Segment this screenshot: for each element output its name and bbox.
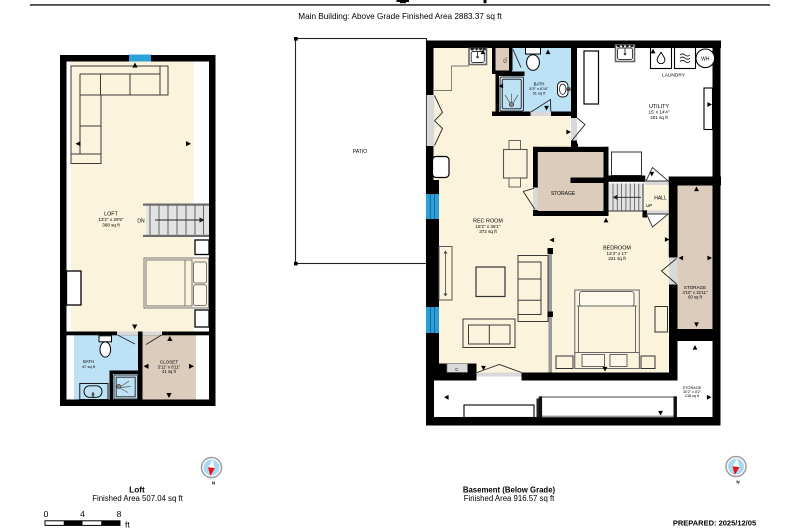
svg-text:221 sq ft: 221 sq ft [608, 256, 626, 261]
svg-text:Basement (Below Grade): Basement (Below Grade) [463, 485, 556, 494]
svg-text:41 sq ft: 41 sq ft [162, 369, 177, 374]
svg-text:CL: CL [503, 57, 508, 63]
svg-text:WH: WH [701, 56, 710, 62]
svg-text:Finished Area 507.04 sq ft: Finished Area 507.04 sq ft [92, 494, 183, 503]
svg-text:8: 8 [117, 509, 122, 519]
svg-text:201 sq ft: 201 sq ft [650, 115, 668, 120]
svg-text:N: N [736, 480, 739, 485]
svg-text:C: C [455, 367, 458, 372]
svg-text:138 sq ft: 138 sq ft [685, 394, 699, 398]
svg-text:UP: UP [646, 203, 652, 208]
svg-text:0: 0 [44, 509, 49, 519]
svg-text:60 sq ft: 60 sq ft [688, 294, 703, 299]
svg-text:4: 4 [80, 509, 85, 519]
svg-text:Loft: Loft [129, 485, 145, 495]
svg-text:ft: ft [125, 520, 130, 530]
svg-text:PREPARED: 2025/12/05: PREPARED: 2025/12/05 [673, 519, 756, 528]
svg-text:372 sq ft: 372 sq ft [479, 229, 497, 234]
svg-text:13'2" x 29'5": 13'2" x 29'5" [98, 217, 124, 222]
svg-text:Main Building: Above Grade Fin: Main Building: Above Grade Finished Area… [298, 12, 502, 21]
svg-text:LAUNDRY: LAUNDRY [662, 73, 686, 79]
svg-text:HALL: HALL [654, 195, 667, 201]
svg-text:DN: DN [137, 219, 145, 225]
svg-text:15' x 14'4": 15' x 14'4" [648, 110, 669, 115]
svg-text:368 sq ft: 368 sq ft [102, 223, 120, 228]
svg-text:47 sq ft: 47 sq ft [82, 364, 96, 369]
svg-text:STORAGE: STORAGE [551, 191, 576, 197]
svg-text:PATIO: PATIO [353, 149, 367, 155]
svg-text:Finished Area 916.57 sq ft: Finished Area 916.57 sq ft [464, 494, 555, 503]
svg-text:N: N [212, 481, 215, 486]
svg-text:51 sq ft: 51 sq ft [533, 90, 547, 95]
